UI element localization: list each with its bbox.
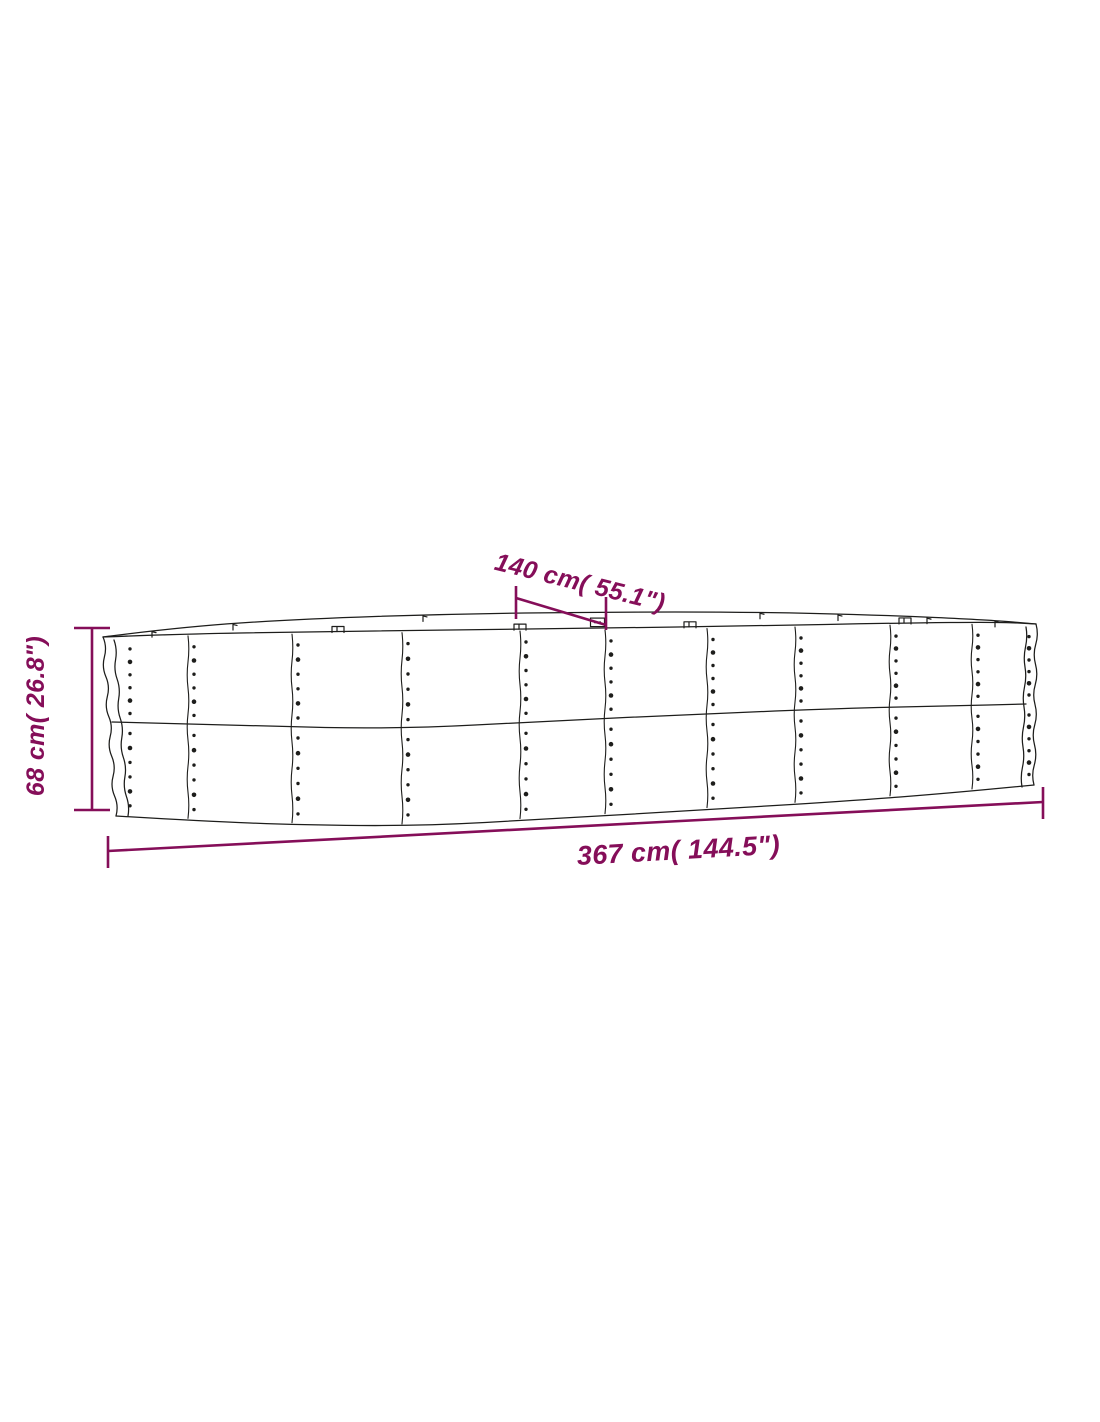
planter-diagram-canvas bbox=[0, 0, 1100, 1422]
dimension-label-height: 68 cm( 26.8") bbox=[21, 626, 51, 806]
diagram-stage: 140 cm( 55.1") 68 cm( 26.8") 367 cm( 144… bbox=[0, 0, 1100, 1422]
panel-seams bbox=[187, 624, 973, 824]
rivet-dots bbox=[128, 634, 1032, 817]
